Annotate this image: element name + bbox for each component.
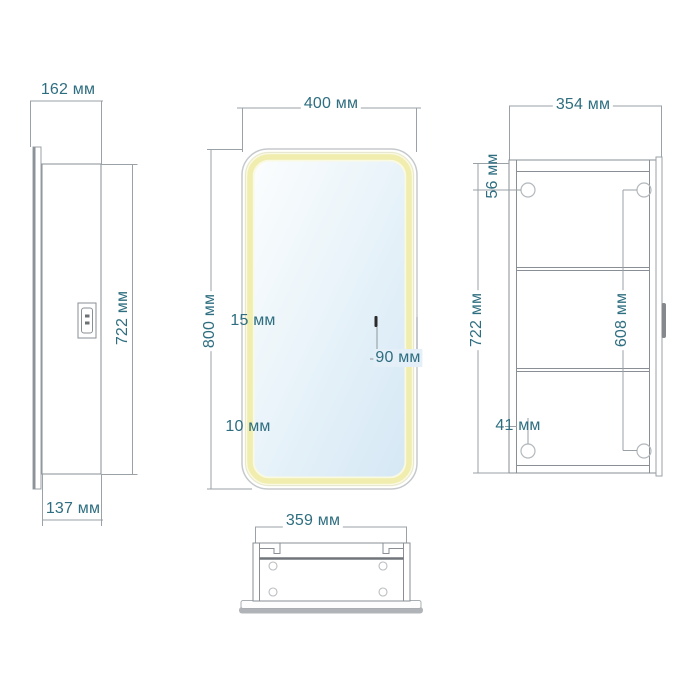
dim-led-strip-width-label: 15 мм [230,313,275,329]
dim-bottom-edge-label: 10 мм [225,419,270,435]
dim-front-width-label: 400 мм [301,95,361,113]
side-mirror-edge [33,147,41,489]
dim-hole-spacing-label: 608 мм [613,290,631,350]
mirror-surface [255,162,405,477]
door-edge [656,157,666,476]
dim-hole-top-offset-label: 56 мм [485,153,501,198]
dim-side-depth-bottom-label: 137 мм [46,501,100,517]
dim-top-width-label: 359 мм [283,512,343,530]
dim-front-height-label: 800 мм [201,291,219,351]
power-socket [78,303,96,338]
dim-back-width-label: 354 мм [553,96,613,114]
technical-drawing-canvas: 162 мм 722 мм 137 мм 400 мм 800 мм 15 мм… [0,0,700,700]
top-view [239,527,423,614]
dim-side-height-label: 722 мм [115,291,131,345]
dim-sensor-offset-label: 90 мм [373,349,422,367]
dim-back-height-label: 722 мм [468,290,486,350]
top-door-panel [239,601,423,614]
dim-side-depth-top-label: 162 мм [41,82,95,98]
touch-sensor-mark [375,316,378,327]
door-handle [662,303,667,338]
dim-hole-bottom-offset-label: 41 мм [495,418,540,434]
